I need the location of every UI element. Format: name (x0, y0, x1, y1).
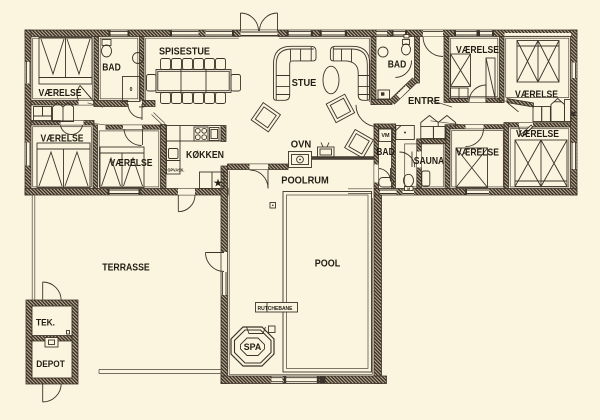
svg-text:STUE: STUE (292, 78, 317, 89)
svg-text:ENTRE: ENTRE (408, 96, 440, 107)
svg-text:POOLRUM: POOLRUM (281, 176, 329, 187)
svg-text:POOL: POOL (315, 259, 341, 270)
svg-text:BAD: BAD (388, 60, 407, 71)
svg-text:DEPOT: DEPOT (36, 359, 65, 370)
svg-text:0: 0 (130, 87, 133, 93)
svg-text:★: ★ (214, 178, 223, 189)
svg-text:SPA: SPA (244, 342, 262, 353)
svg-text:VÆRELSE: VÆRELSE (456, 148, 499, 159)
svg-text:TEK.: TEK. (36, 318, 55, 329)
svg-text:VÆRELSE: VÆRELSE (515, 90, 558, 101)
svg-text:VÆRELSE: VÆRELSE (456, 45, 499, 56)
svg-text:SPISESTUE: SPISESTUE (159, 47, 210, 58)
svg-text:BAD: BAD (102, 63, 121, 74)
svg-text:M: M (407, 187, 410, 191)
svg-text:TERRASSE: TERRASSE (102, 263, 150, 274)
svg-text:VÆRELSE: VÆRELSE (516, 129, 559, 140)
svg-text:OVN: OVN (291, 140, 312, 151)
svg-text:VÆRELSE: VÆRELSE (41, 134, 84, 145)
svg-text:VÆRELSE: VÆRELSE (39, 88, 82, 99)
svg-text:SAUNA: SAUNA (414, 156, 445, 167)
svg-text:KØKKEN: KØKKEN (186, 150, 224, 161)
svg-text:VÆRELSE: VÆRELSE (110, 158, 153, 169)
svg-text:VM: VM (381, 133, 390, 139)
svg-text:BAD: BAD (376, 147, 395, 158)
svg-text:OPVASK.: OPVASK. (168, 167, 185, 172)
svg-text:RUTCHEBANE: RUTCHEBANE (258, 306, 294, 312)
